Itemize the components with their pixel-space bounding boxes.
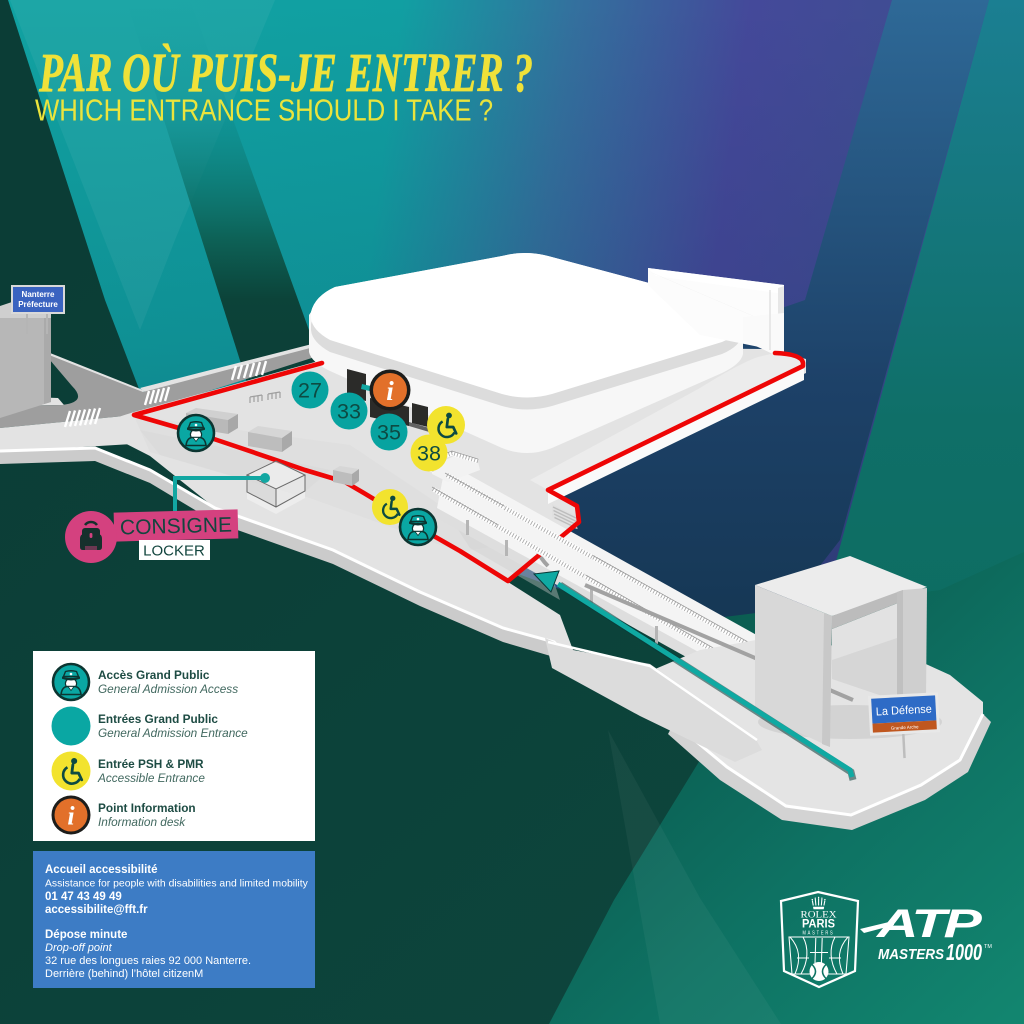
svg-text:Préfecture: Préfecture [18,300,58,309]
svg-text:PARIS: PARIS [802,919,835,931]
svg-text:Accès Grand Public: Accès Grand Public [98,668,210,682]
svg-text:01 47 43 49 49: 01 47 43 49 49 [45,891,122,903]
svg-text:General Admission Access: General Admission Access [98,682,238,696]
svg-text:32 rue des longues raies 92 0: 32 rue des longues raies 92 000 Nanterre… [45,955,251,967]
svg-text:TM: TM [984,944,992,950]
svg-text:Entrées Grand Public: Entrées Grand Public [98,712,218,726]
svg-text:Derrière (behind) l’hôtel citi: Derrière (behind) l’hôtel citizenM [45,968,203,980]
svg-text:accessibilite@fft.fr: accessibilite@fft.fr [45,904,148,916]
svg-text:27: 27 [298,379,322,403]
svg-text:i: i [67,802,75,831]
svg-text:General Admission Entrance: General Admission Entrance [98,726,248,740]
svg-text:33: 33 [337,400,361,424]
svg-text:WHICH ENTRANCE SHOULD I TAKE ?: WHICH ENTRANCE SHOULD I TAKE ? [35,93,493,128]
svg-text:Nanterre: Nanterre [22,290,55,299]
svg-text:Assistance for people with dis: Assistance for people with disabilities … [45,879,309,890]
svg-text:MASTERS: MASTERS [803,931,835,937]
svg-text:Drop-off point: Drop-off point [45,942,113,954]
svg-text:Accessible Entrance: Accessible Entrance [97,771,205,785]
svg-text:Information desk: Information desk [98,815,186,829]
svg-text:38: 38 [417,442,441,466]
svg-text:Entrée PSH & PMR: Entrée PSH & PMR [98,757,204,771]
svg-text:Dépose minute: Dépose minute [45,929,127,941]
svg-text:35: 35 [377,421,401,445]
svg-text:CONSIGNE: CONSIGNE [120,514,233,540]
svg-text:MASTERS: MASTERS [878,947,944,963]
svg-text:Accueil accessibilité: Accueil accessibilité [45,864,158,876]
svg-text:1000: 1000 [946,939,982,965]
svg-text:i: i [386,376,394,406]
svg-text:LOCKER: LOCKER [143,543,205,560]
svg-text:Point Information: Point Information [98,801,196,815]
